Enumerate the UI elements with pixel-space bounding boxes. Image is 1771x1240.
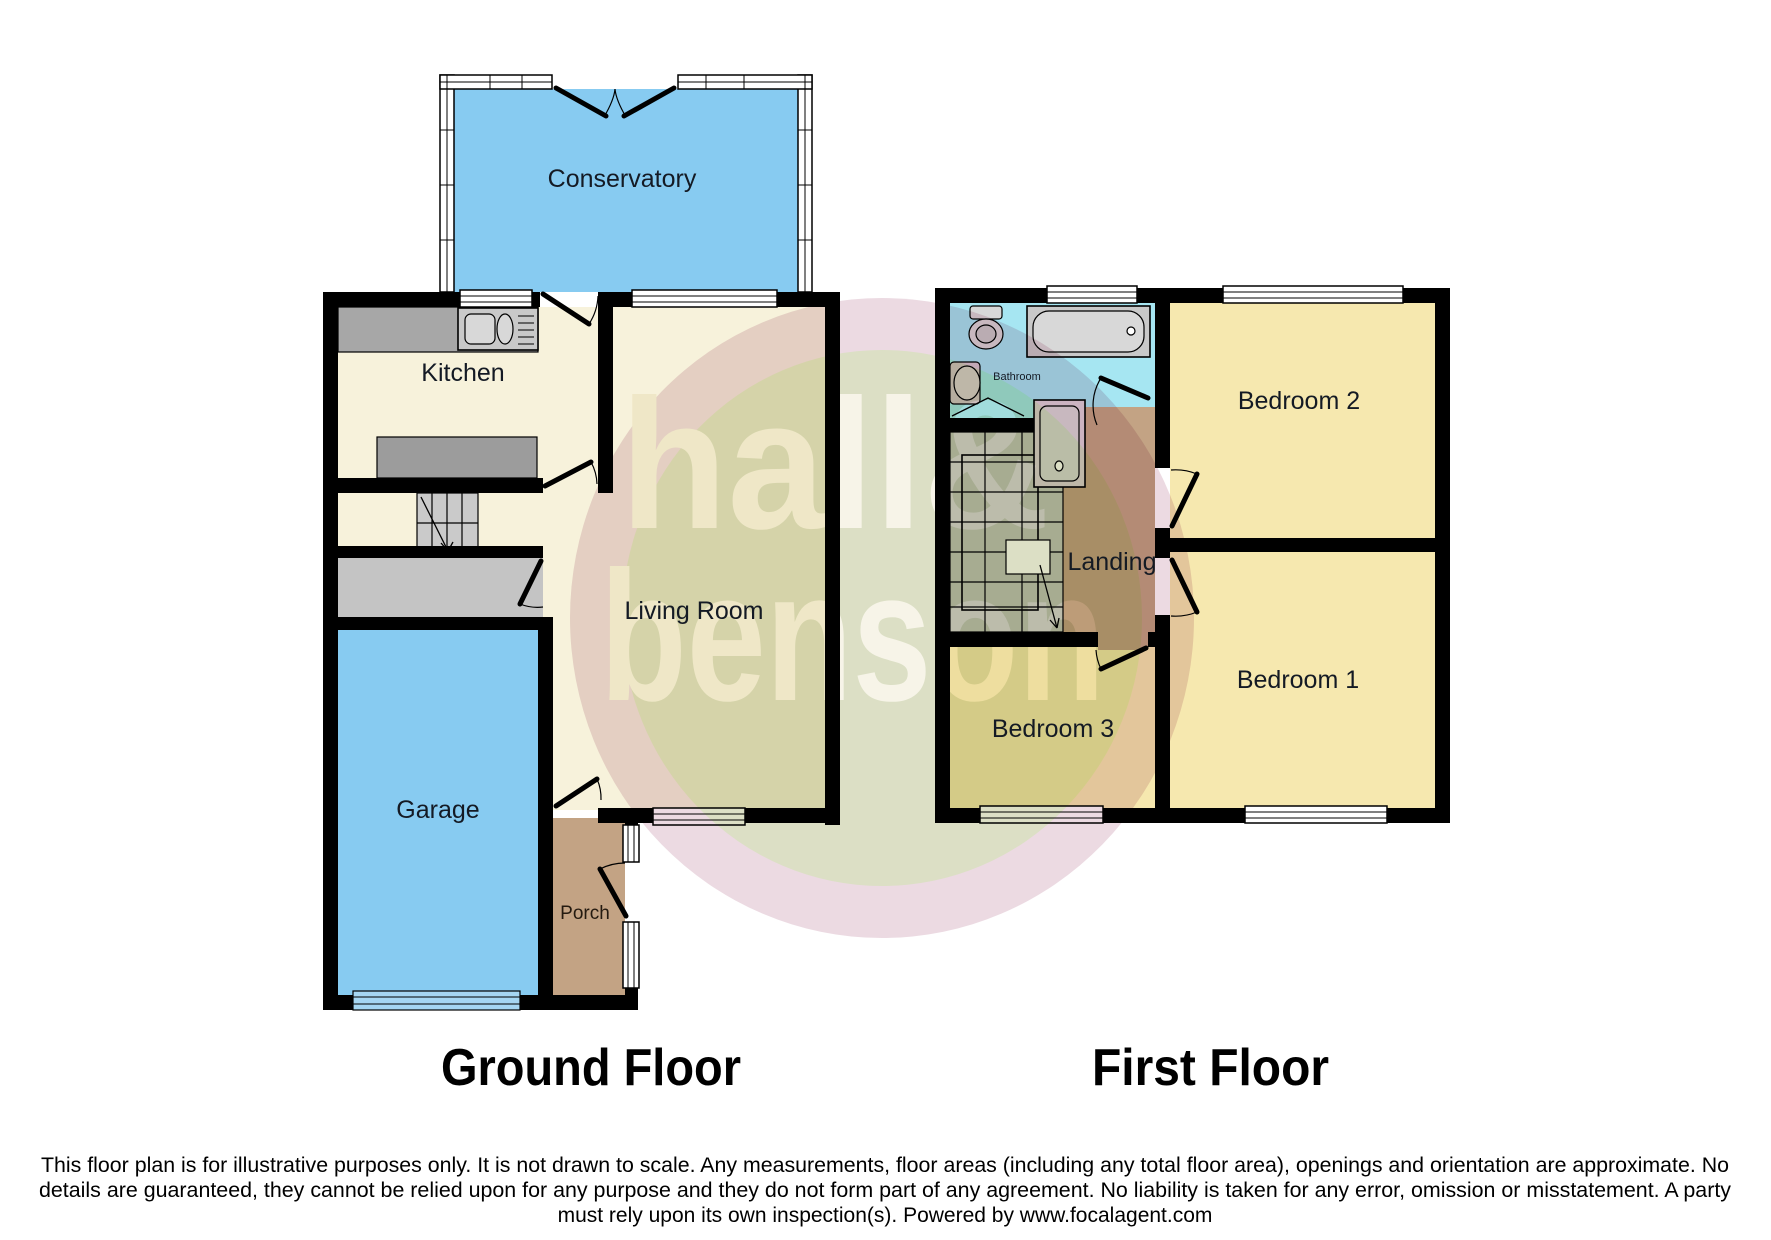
label-garage: Garage [396,796,479,824]
disclaimer-line-3: must rely upon its own inspection(s). Po… [558,1204,1213,1227]
wall-segment [1435,288,1450,823]
wall-segment [598,292,632,307]
wall-segment [1170,538,1435,552]
disclaimer-text: This floor plan is for illustrative purp… [39,1154,1731,1227]
label-kitchen: Kitchen [421,359,504,387]
window-porch-upper [623,825,639,862]
window-porch-lower [623,922,639,988]
first-floor-title: First Floor [1092,1039,1329,1097]
wall-segment [323,617,553,630]
store-room [338,558,543,617]
label-living-room: Living Room [625,597,764,625]
floorplan-drawing: hall& benson Conservatory Kitchen Living… [0,0,1771,1240]
label-landing: Landing [1068,548,1157,576]
staircase-ground [417,493,478,553]
label-bedroom-2: Bedroom 2 [1238,387,1360,415]
window-living-conservatory [632,290,777,307]
room-bedroom-2 [1170,303,1435,538]
wall-segment [1137,288,1223,303]
wall-segment [1387,808,1450,823]
label-bedroom-3: Bedroom 3 [992,715,1114,743]
floorplan-page: hall& benson Conservatory Kitchen Living… [0,0,1771,1240]
kitchen-sink [458,308,538,350]
window-bathroom [1047,286,1137,303]
wall-segment [323,546,543,558]
wall-segment [323,478,543,493]
wall-segment [323,292,460,307]
label-conservatory: Conservatory [548,165,697,193]
ground-floor-title: Ground Floor [441,1039,741,1097]
window-bedroom-1 [1245,806,1387,823]
disclaimer-line-2: details are guaranteed, they cannot be r… [39,1179,1731,1202]
wall-segment [323,292,338,1010]
garage-door [353,991,520,1010]
wall-segment [935,288,1047,303]
watermark-word-2: benson [600,534,1105,740]
kitchen-island-counter [377,437,537,478]
window-bedroom-2 [1223,286,1403,303]
wall-segment [532,292,540,307]
label-bedroom-1: Bedroom 1 [1237,666,1359,694]
wall-segment [625,988,638,1010]
window-kitchen-conservatory [460,290,532,307]
label-bathroom: Bathroom [993,371,1041,383]
label-porch: Porch [560,903,610,924]
disclaimer-line-1: This floor plan is for illustrative purp… [41,1154,1729,1177]
wall-segment [1155,303,1170,468]
wall-segment [538,617,553,995]
